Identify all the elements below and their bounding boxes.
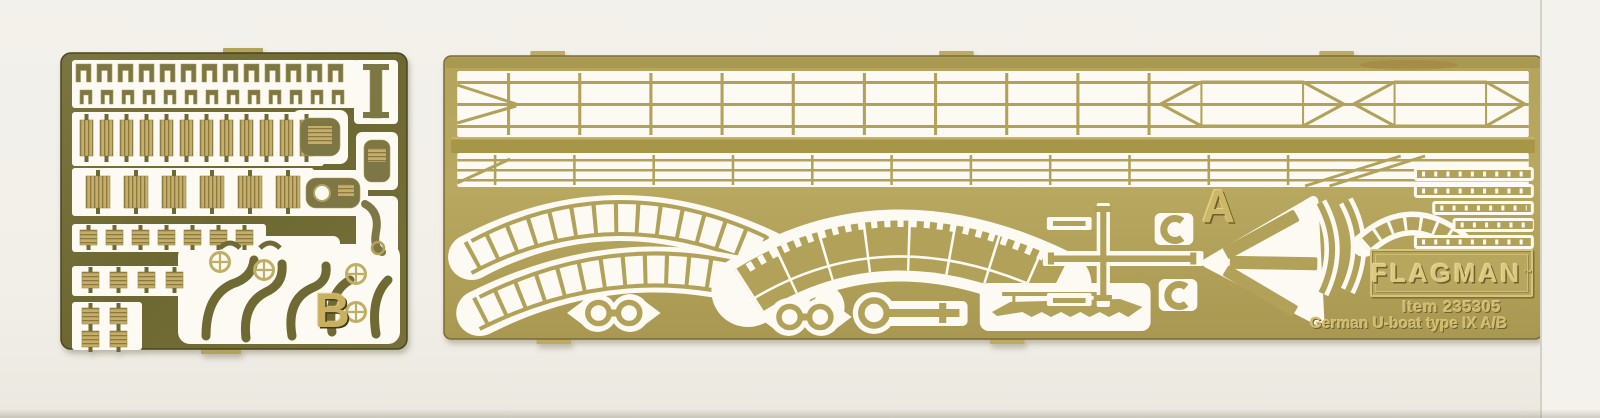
tarnish-stain — [1360, 60, 1458, 70]
trademark-symbol: ™ — [1523, 268, 1532, 278]
photo-etch-fret-b: B — [60, 52, 408, 350]
scanner-bottom-shadow — [0, 409, 1600, 418]
fret-b-artwork — [60, 52, 408, 350]
net-cutter-saw-part — [980, 283, 1151, 331]
photo-etch-fret-a: A FLAGMAN™ Item 235305 German U-boat typ… — [443, 55, 1543, 340]
flagman-logo-plate: FLAGMAN™ — [1370, 249, 1533, 297]
fret-a-artwork — [443, 55, 1543, 340]
deck-railing-strip-lower — [457, 153, 1529, 187]
flagman-logo-frame: FLAGMAN™ — [1375, 254, 1528, 292]
brand-name: FLAGMAN — [1371, 258, 1522, 289]
scan-background: B — [0, 0, 1600, 418]
scanner-edge-shadow — [1540, 0, 1600, 418]
deck-railing-strip-upper — [457, 71, 1529, 137]
